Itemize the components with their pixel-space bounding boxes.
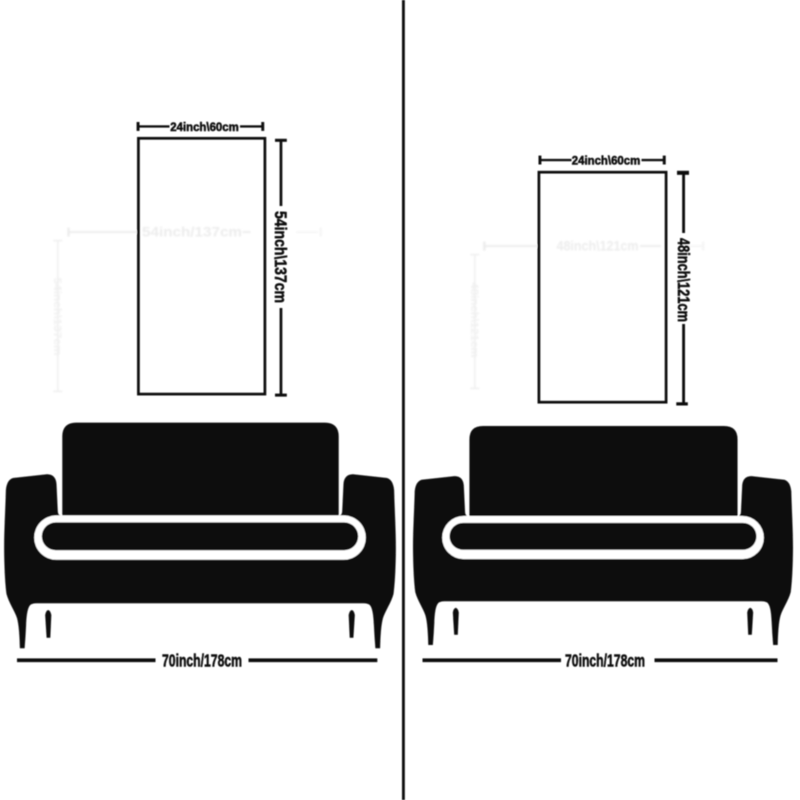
svg-text:24inch\60cm: 24inch\60cm [572, 153, 641, 167]
svg-text:48inch\121cm: 48inch\121cm [674, 238, 692, 322]
svg-text:54inch\137cm: 54inch\137cm [51, 278, 63, 356]
svg-text:54inch/137cm: 54inch/137cm [142, 225, 242, 240]
svg-text:24inch\60cm: 24inch\60cm [170, 120, 239, 134]
svg-text:54inch\137cm: 54inch\137cm [271, 211, 289, 303]
svg-text:48inch\121cm: 48inch\121cm [468, 283, 480, 358]
svg-text:48inch\121cm: 48inch\121cm [557, 238, 639, 253]
svg-text:70inch/178cm: 70inch/178cm [162, 650, 242, 670]
svg-text:70inch/178cm: 70inch/178cm [565, 650, 645, 670]
